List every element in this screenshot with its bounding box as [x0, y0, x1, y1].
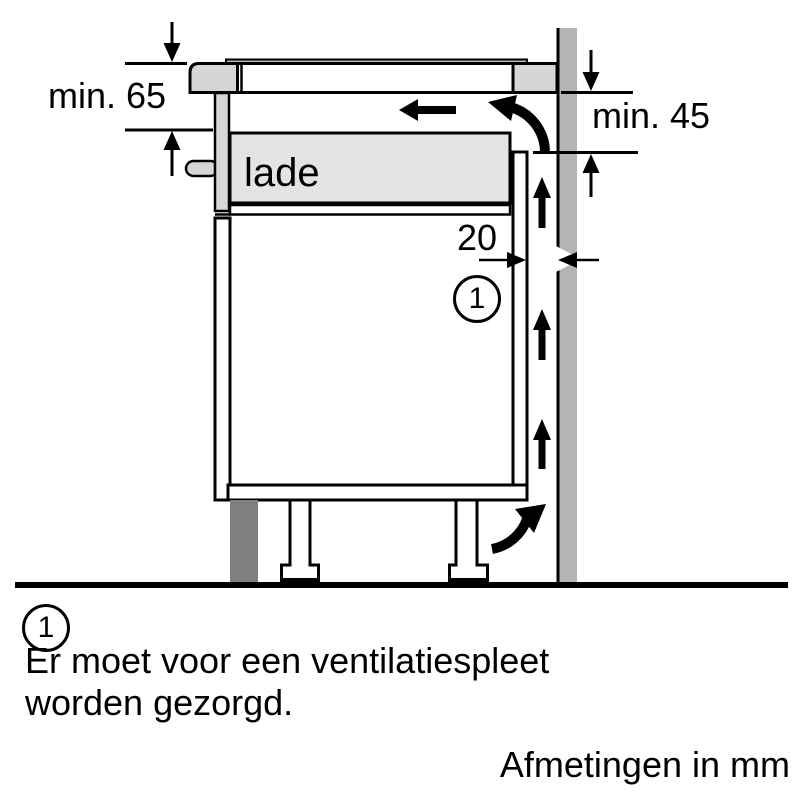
cabinet-front-panel: [215, 218, 230, 500]
callout-1-marker-diagram: 1: [453, 275, 501, 323]
airflow-curve-top-arrowhead: [488, 95, 517, 121]
airflow-up-arrowhead-2: [533, 309, 551, 330]
back-leg: [450, 500, 488, 581]
airflow-curve-top: [510, 107, 545, 152]
cabinet-bottom-shelf: [228, 485, 527, 500]
front-leg: [282, 500, 319, 581]
hob-left-profile: [190, 64, 238, 93]
dim45-down-arrowhead: [583, 72, 600, 91]
footnote-text-line1: Er moet voor een ventilatiespleet: [25, 643, 549, 679]
dim-label-20: 20: [457, 220, 497, 256]
cabinet-front-rail: [215, 93, 229, 211]
wall: [559, 28, 577, 582]
hob-body: [190, 64, 557, 93]
dim-label-min45: min. 45: [592, 98, 710, 134]
drawer-bottom-rail: [230, 205, 510, 215]
airflow-left-arrowhead: [399, 99, 418, 121]
footnote-text-line2: worden gezorgd.: [25, 685, 293, 721]
callout-1-number: 1: [469, 284, 486, 314]
airflow-curve-bottom: [492, 519, 527, 549]
units-caption: Afmetingen in mm: [500, 747, 790, 783]
cabinet-back-panel: [513, 152, 527, 500]
dim65-up-arrowhead: [164, 131, 181, 150]
installation-diagram-page: min. 65 min. 45 20 lade 1 1 Er moet voor…: [0, 0, 800, 800]
airflow-up-arrowhead-1: [533, 177, 551, 198]
airflow-up-arrowhead-3: [533, 419, 551, 440]
plinth: [230, 500, 258, 582]
footnote-marker-number: 1: [38, 613, 55, 643]
fixing-clamp: [186, 161, 218, 176]
dim45-up-arrowhead: [583, 154, 600, 173]
dim65-down-arrowhead: [164, 43, 181, 62]
hob-right-profile: [513, 64, 557, 93]
dim-label-min65: min. 65: [48, 78, 166, 114]
drawer-label: lade: [244, 153, 320, 193]
